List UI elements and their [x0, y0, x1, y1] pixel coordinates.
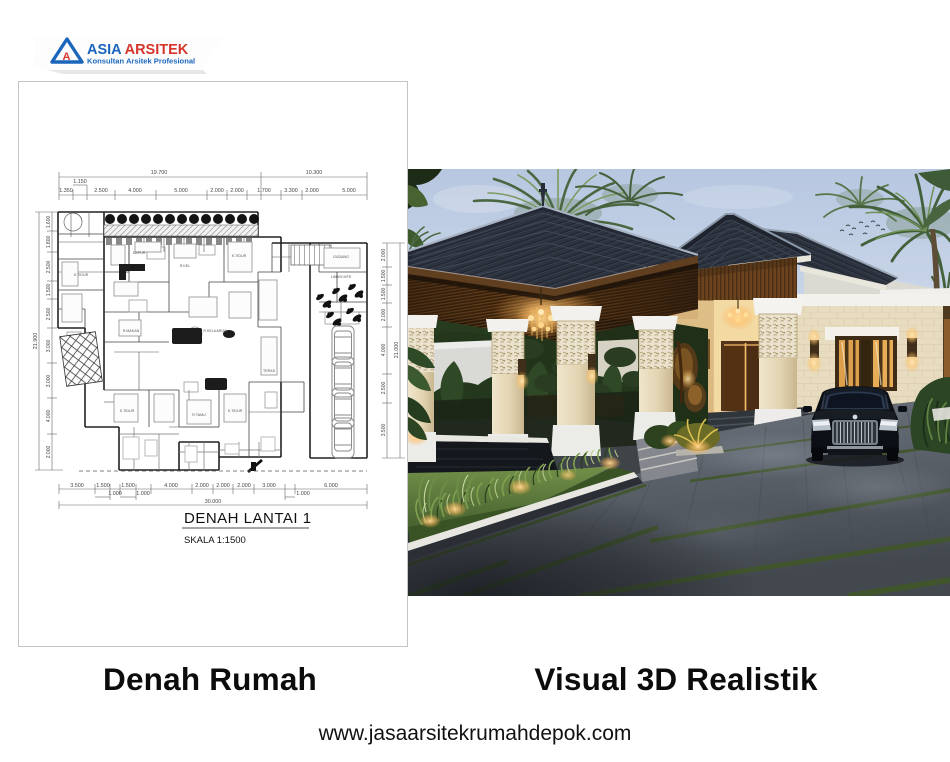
svg-text:2.500: 2.500 — [46, 261, 52, 274]
svg-text:2.500: 2.500 — [46, 308, 52, 321]
svg-text:SKALA 1:1500: SKALA 1:1500 — [184, 535, 246, 546]
svg-text:1.500: 1.500 — [381, 288, 387, 301]
svg-text:R.MAKAN: R.MAKAN — [123, 329, 140, 333]
svg-text:1.500: 1.500 — [381, 270, 387, 283]
svg-text:1.000: 1.000 — [136, 491, 150, 497]
svg-text:6.000: 6.000 — [324, 483, 338, 489]
svg-text:TERAS: TERAS — [263, 369, 276, 373]
svg-text:3.300: 3.300 — [284, 188, 298, 194]
svg-text:2.000: 2.000 — [237, 483, 251, 489]
svg-text:10.300: 10.300 — [306, 170, 323, 176]
svg-text:2.000: 2.000 — [381, 249, 387, 262]
svg-text:5.000: 5.000 — [174, 188, 188, 194]
svg-text:3.000: 3.000 — [46, 375, 52, 388]
svg-text:2.000: 2.000 — [216, 483, 230, 489]
svg-text:4.000: 4.000 — [381, 344, 387, 357]
svg-text:2.500: 2.500 — [381, 382, 387, 395]
svg-text:2.000: 2.000 — [46, 446, 52, 459]
svg-text:DAPUR: DAPUR — [133, 251, 146, 255]
svg-text:30.000: 30.000 — [205, 499, 222, 505]
svg-text:GUDANG: GUDANG — [333, 255, 349, 259]
svg-text:1.350: 1.350 — [59, 188, 73, 194]
svg-text:R.KEL: R.KEL — [180, 264, 190, 268]
svg-text:2.500: 2.500 — [94, 188, 108, 194]
svg-text:21.900: 21.900 — [33, 333, 39, 350]
svg-text:R.KELUARGA: R.KELUARGA — [203, 329, 227, 333]
svg-text:3.000: 3.000 — [262, 483, 276, 489]
svg-text:1.150: 1.150 — [73, 179, 87, 185]
svg-text:1.500: 1.500 — [46, 284, 52, 297]
svg-text:K.TIDUR: K.TIDUR — [120, 409, 135, 413]
svg-text:LIMASI MTR: LIMASI MTR — [331, 275, 352, 279]
svg-text:2.000: 2.000 — [230, 188, 244, 194]
svg-text:2.000: 2.000 — [305, 188, 319, 194]
svg-text:4.000: 4.000 — [164, 483, 178, 489]
svg-text:1.500: 1.500 — [121, 483, 135, 489]
svg-text:19.700: 19.700 — [151, 170, 168, 176]
svg-text:1.500: 1.500 — [96, 483, 110, 489]
svg-text:3.000: 3.000 — [46, 340, 52, 353]
svg-text:2.000: 2.000 — [381, 309, 387, 322]
svg-text:4.000: 4.000 — [46, 410, 52, 423]
svg-text:21.000: 21.000 — [394, 342, 400, 359]
svg-text:1.000: 1.000 — [108, 491, 122, 497]
svg-text:DENAH LANTAI 1: DENAH LANTAI 1 — [184, 510, 312, 527]
svg-text:K.TIDUR: K.TIDUR — [232, 254, 247, 258]
svg-text:A: A — [63, 51, 71, 63]
svg-text:K.TIDUR: K.TIDUR — [74, 273, 89, 277]
svg-text:1.800: 1.800 — [46, 236, 52, 249]
svg-text:2.000: 2.000 — [210, 188, 224, 194]
svg-text:1.000: 1.000 — [296, 491, 310, 497]
svg-text:4.000: 4.000 — [128, 188, 142, 194]
svg-text:R.TAMU: R.TAMU — [192, 413, 206, 417]
svg-text:5.000: 5.000 — [342, 188, 356, 194]
svg-text:3.500: 3.500 — [70, 483, 84, 489]
svg-text:1.700: 1.700 — [257, 188, 271, 194]
svg-text:K.TIDUR: K.TIDUR — [228, 409, 243, 413]
svg-text:Konsultan Arsitek Profesional: Konsultan Arsitek Profesional — [87, 57, 195, 66]
svg-text:3.500: 3.500 — [381, 424, 387, 437]
svg-text:1.600: 1.600 — [46, 216, 52, 229]
svg-text:2.000: 2.000 — [195, 483, 209, 489]
